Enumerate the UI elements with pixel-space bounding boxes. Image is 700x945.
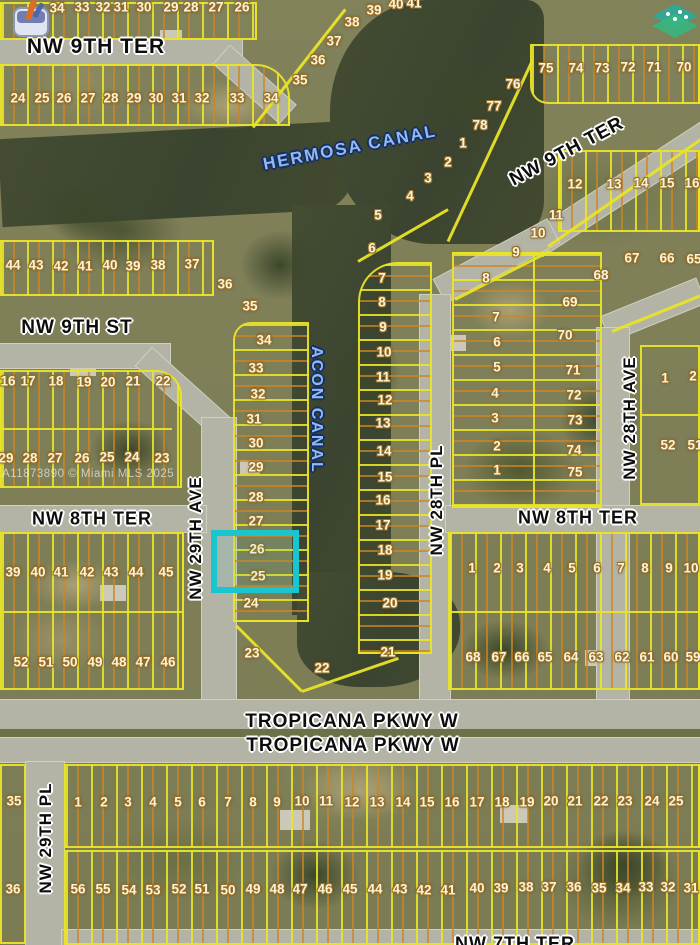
canal-name-label: HERMOSA CANAL — [261, 121, 438, 174]
mls-logo-icon — [650, 2, 700, 52]
street-name-label: NW 9TH TER — [506, 113, 628, 192]
street-name-label: NW 29TH AVE — [186, 476, 206, 599]
street-name-label: NW 29TH PL — [36, 782, 56, 893]
street-name-label: NW 8TH TER — [518, 508, 638, 529]
street-name-label: TROPICANA PKWY W — [246, 735, 459, 757]
street-name-label: NW 28TH AVE — [620, 356, 640, 479]
street-name-label: NW 9TH ST — [21, 317, 132, 339]
street-name-label: NW 7TH TER — [455, 934, 575, 945]
highlighted-parcel-box[interactable] — [211, 530, 299, 593]
street-name-label: NW 28TH PL — [427, 444, 447, 555]
canal-name-label: ACON CANAL — [307, 346, 325, 474]
street-name-label: TROPICANA PKWY W — [245, 711, 458, 733]
aerial-plat-map[interactable]: 3433323130292827262425262728293031323334… — [0, 0, 700, 945]
listing-marker-icon — [8, 0, 58, 42]
street-name-label: NW 8TH TER — [32, 509, 152, 530]
watermark: A11873890 © Miami MLS 2025 — [2, 468, 174, 480]
